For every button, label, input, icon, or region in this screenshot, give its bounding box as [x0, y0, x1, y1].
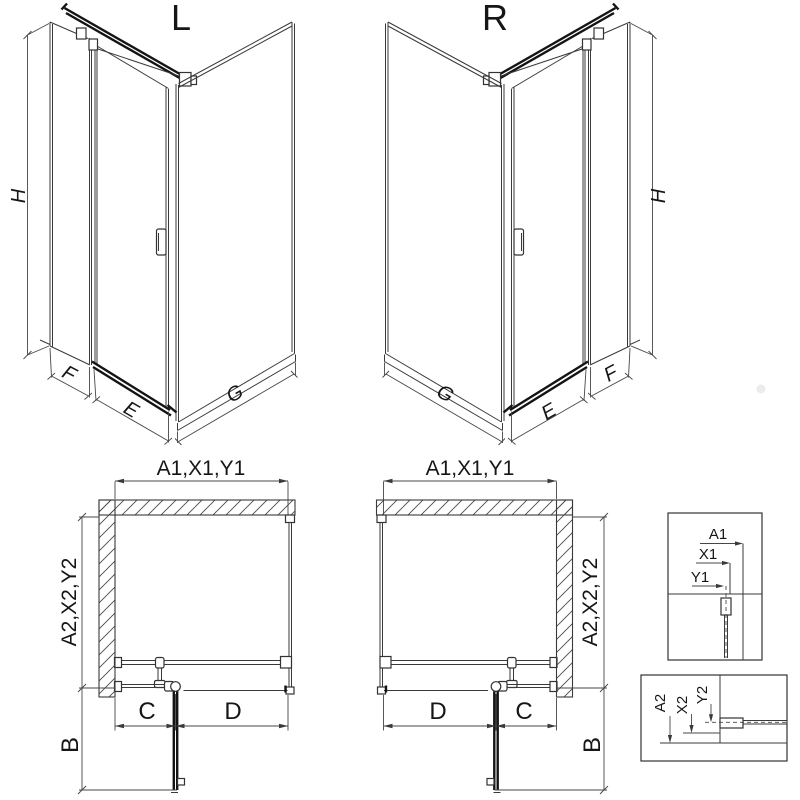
wall-top-left-plan	[99, 500, 295, 515]
iso-right-dim-h: H	[648, 188, 670, 203]
detail-bottom-a2: A2	[652, 694, 669, 712]
iso-left-dim-h: H	[8, 188, 30, 203]
wall-side-left-plan	[99, 500, 115, 697]
plan-right-width-dim: A1,X1,Y1	[426, 457, 515, 480]
wall-profile-section	[720, 718, 743, 728]
iso-left-dim-e: E	[120, 397, 143, 423]
detail-top-a1: A1	[709, 526, 727, 543]
plan-left-side-dimensions	[78, 513, 177, 794]
plan-right-depth-dim: A2,X2,Y2	[579, 558, 602, 647]
plan-view-geometry	[115, 479, 295, 793]
iso-left-dim-f: F	[58, 361, 81, 387]
plan-left-dim-b: B	[57, 737, 84, 753]
detail-top-x1: X1	[699, 546, 717, 563]
door-handle	[157, 229, 167, 255]
hinge-top-bracket	[89, 39, 98, 50]
watermark-dot	[757, 385, 766, 394]
door-pivot	[171, 682, 181, 692]
plan-left-dim-c: C	[138, 698, 155, 725]
detail-box-bottom	[641, 675, 787, 761]
detail-top-y1: Y1	[691, 569, 709, 586]
technical-drawing-canvas: L H F E G R H F E G A1,X1,Y1 A2,X2,Y2 C …	[0, 0, 800, 800]
shower-enclosure-technical-drawing: L H F E G R H F E G A1,X1,Y1 A2,X2,Y2 C …	[0, 0, 800, 800]
detail-bottom-y2: Y2	[694, 686, 711, 704]
iso-right-dim-f: F	[600, 361, 623, 387]
detail-bottom-x2: X2	[674, 696, 691, 714]
door-handle-plan	[178, 779, 185, 786]
top-stabilizer-bar	[65, 8, 188, 83]
plan-right-dim-b: B	[579, 737, 606, 753]
iso-right-dim-e: E	[538, 399, 561, 425]
iso-right-title: R	[482, 0, 508, 38]
iso-left-title: L	[171, 0, 191, 38]
plan-left-dim-d: D	[224, 698, 241, 725]
plan-view-geometry-mirrored	[377, 479, 557, 793]
wall-top-right-plan	[377, 500, 573, 515]
plan-left-depth-dim: A2,X2,Y2	[58, 558, 81, 647]
wall-side-right-plan	[557, 500, 573, 697]
plan-left-width-dim: A1,X1,Y1	[157, 457, 246, 480]
wall-bracket	[77, 28, 87, 39]
plan-right-dim-d: D	[429, 698, 446, 725]
plan-right-dim-c: C	[515, 698, 532, 725]
